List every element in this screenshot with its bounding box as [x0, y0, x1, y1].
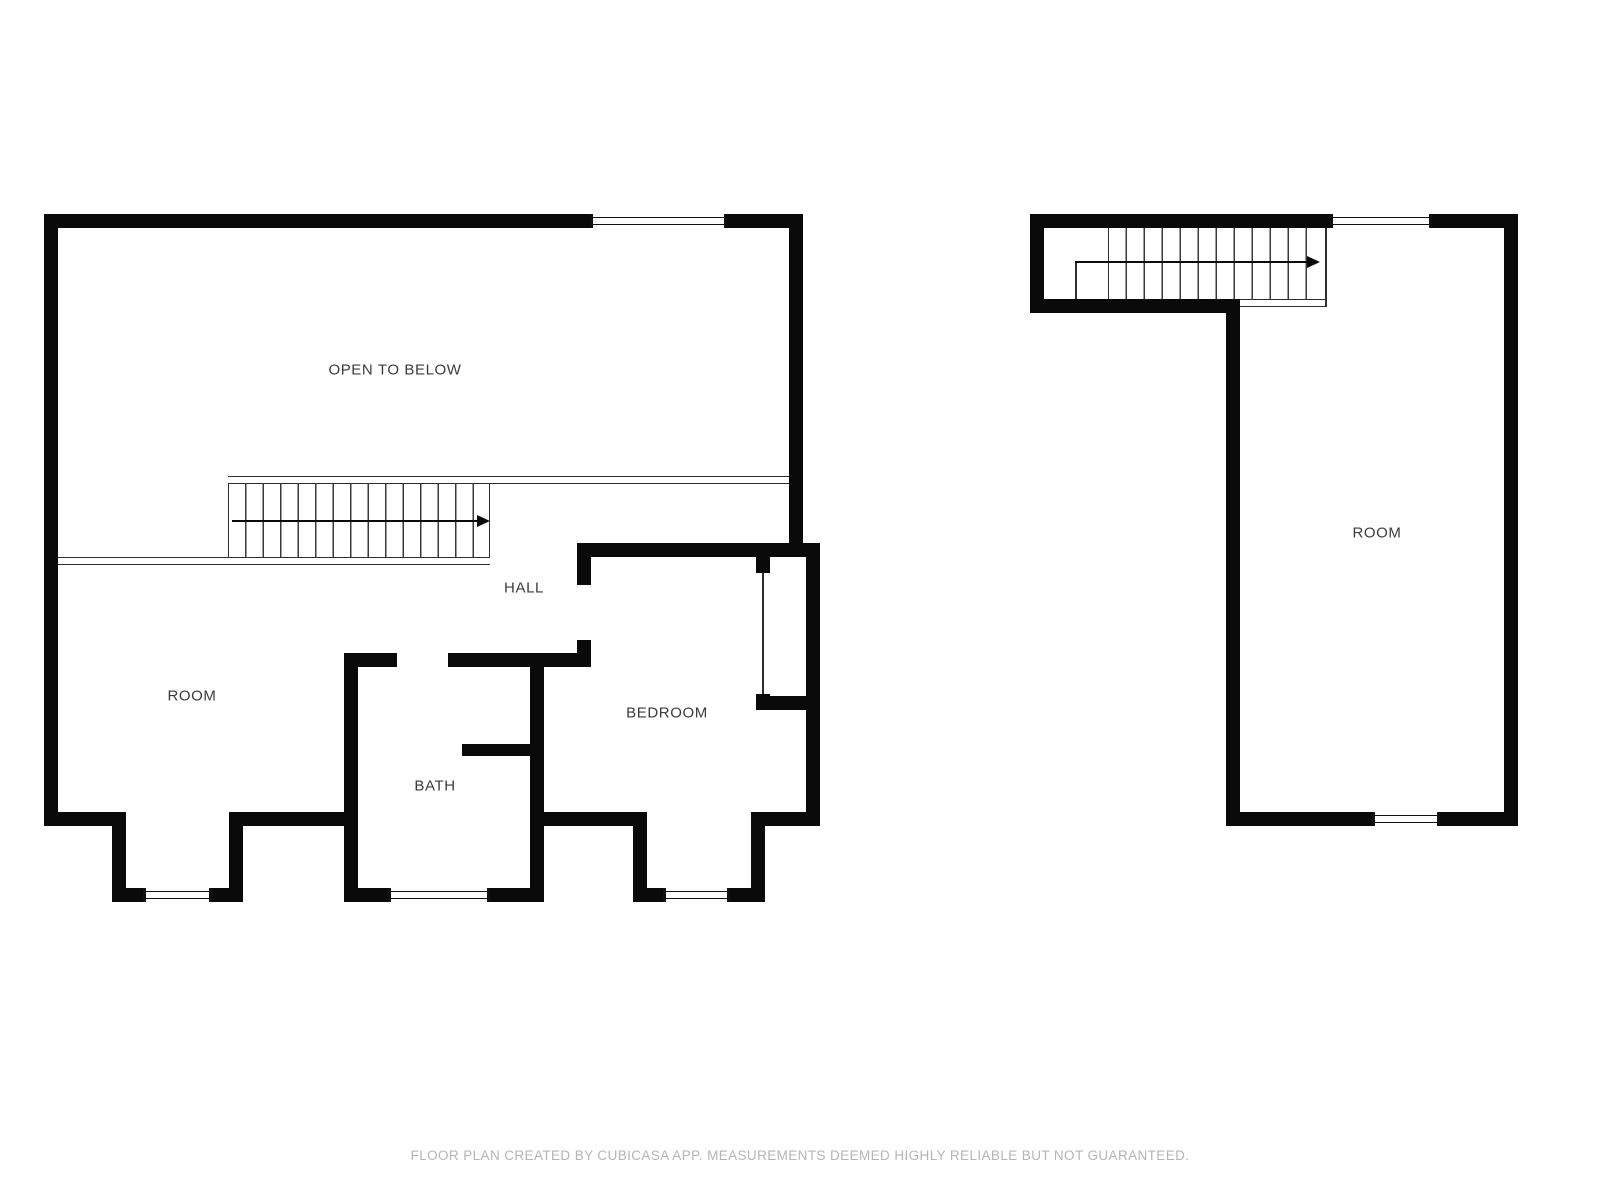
left-unit-right-wall-lower — [806, 543, 820, 826]
bath-window — [388, 888, 490, 902]
bottom-wall-segment — [229, 812, 344, 826]
right-unit-top-window — [1330, 214, 1432, 228]
closet-bottom-wall — [756, 696, 820, 710]
stairs-arrow-head-icon — [477, 515, 490, 527]
room-label: ROOM — [1352, 525, 1401, 542]
room-label: ROOM — [167, 688, 216, 705]
right-unit-room-left-wall — [1226, 299, 1240, 826]
right-unit-top-wall-left — [1030, 214, 1330, 228]
bath-label: BATH — [414, 778, 455, 795]
bath-bottom-right — [490, 888, 544, 902]
bedroom-bay-bottom-left — [633, 888, 663, 902]
stairs-direction-arrow — [232, 520, 478, 522]
footer-disclaimer: FLOOR PLAN CREATED BY CUBICASA APP. MEAS… — [0, 1148, 1600, 1163]
bath-top-wall-right — [448, 653, 591, 667]
left-unit-right-wall-upper — [789, 214, 803, 557]
right-unit-bottom-wall-left — [1226, 812, 1372, 826]
stair-strip-bottom-wall — [1030, 299, 1240, 313]
bath-partition-stub — [462, 744, 544, 756]
open-to-below-label: OPEN TO BELOW — [328, 362, 461, 379]
room-bay-bottom-left — [112, 888, 143, 902]
bottom-wall-segment — [530, 812, 645, 826]
bath-right-wall — [530, 653, 544, 902]
hall-label: HALL — [504, 580, 544, 597]
left-unit-left-wall — [44, 214, 58, 826]
stairs-bottom-rail — [58, 557, 490, 565]
stairs-treads — [1108, 228, 1307, 299]
stairs-direction-arrow — [1075, 261, 1308, 263]
stairs-stringer — [1240, 299, 1325, 307]
bath-left-wall — [344, 653, 358, 902]
closet-stub-top — [756, 557, 770, 573]
right-unit-bottom-wall-right — [1440, 812, 1518, 826]
right-unit-right-wall — [1504, 214, 1518, 826]
bedroom-top-wall — [577, 543, 820, 557]
bedroom-bay-window — [663, 888, 730, 902]
bath-top-wall-left — [344, 653, 397, 667]
right-unit-bottom-window — [1372, 812, 1440, 826]
room-bay-window — [143, 888, 212, 902]
bedroom-left-wall-upper — [577, 543, 591, 585]
bedroom-label: BEDROOM — [626, 705, 708, 722]
stairs-arrow-tail — [1075, 262, 1077, 299]
stairs-arrow-head-icon — [1307, 256, 1320, 268]
left-unit-top-window — [590, 214, 727, 228]
bottom-wall-segment — [751, 812, 820, 826]
left-unit-top-wall-left — [44, 214, 590, 228]
stairs-edge-line — [1325, 228, 1327, 307]
closet-door-line — [762, 573, 764, 694]
bath-bottom-left — [344, 888, 388, 902]
floor-plan-canvas: OPEN TO BELOW HALL ROOM BATH BEDROOM ROO… — [0, 0, 1600, 1200]
bedroom-left-wall-lower — [577, 640, 591, 667]
